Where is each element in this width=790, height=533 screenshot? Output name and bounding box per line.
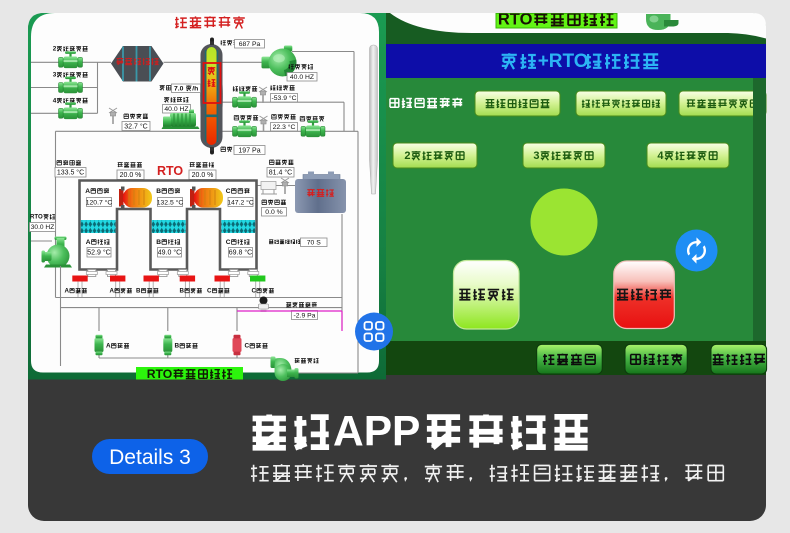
svg-text:197 Pa: 197 Pa (238, 147, 260, 154)
svg-text:APP: APP (333, 408, 420, 455)
svg-text:120.7 °C: 120.7 °C (86, 198, 113, 206)
svg-text:RTO: RTO (30, 214, 43, 221)
svg-text:81.4 °C: 81.4 °C (269, 169, 292, 177)
svg-text:49.0 °C: 49.0 °C (158, 249, 181, 257)
svg-text:+RTO: +RTO (538, 51, 589, 72)
svg-text:A: A (65, 288, 70, 295)
svg-text:A: A (106, 343, 111, 350)
svg-text:4: 4 (53, 98, 57, 105)
svg-text:133.5 °C: 133.5 °C (57, 169, 84, 177)
svg-text:C: C (207, 288, 212, 295)
svg-text:22.3 °C: 22.3 °C (273, 123, 296, 131)
svg-text:30.0 HZ: 30.0 HZ (31, 224, 54, 231)
svg-text:C: C (226, 239, 231, 246)
svg-text:2: 2 (404, 150, 410, 162)
svg-text:69.8 °C: 69.8 °C (229, 249, 252, 257)
svg-text:B: B (156, 239, 161, 246)
svg-text:-53.9 °C: -53.9 °C (271, 94, 296, 102)
svg-text:20.0 %: 20.0 % (120, 172, 142, 179)
svg-text:4: 4 (657, 150, 664, 162)
svg-text:32.7 °C: 32.7 °C (124, 122, 147, 130)
svg-text:3: 3 (53, 72, 57, 79)
svg-text:Details 3: Details 3 (109, 446, 191, 469)
svg-text:B: B (175, 343, 180, 350)
svg-text:3: 3 (533, 150, 539, 162)
svg-text:B: B (180, 288, 185, 295)
svg-text:20.0 %: 20.0 % (192, 172, 214, 179)
svg-text:RTO: RTO (157, 164, 183, 178)
svg-text:-2.9 Pa: -2.9 Pa (294, 312, 316, 319)
svg-text:C: C (226, 188, 231, 195)
svg-text:40.0 HZ: 40.0 HZ (164, 106, 188, 113)
svg-text:B: B (156, 188, 161, 195)
svg-text:40.0 HZ: 40.0 HZ (290, 74, 314, 81)
svg-text:0.0 %: 0.0 % (265, 209, 282, 216)
svg-text:RTO: RTO (147, 367, 173, 381)
svg-text:7.0: 7.0 (174, 85, 184, 92)
svg-text:70 S: 70 S (307, 240, 321, 247)
svg-text:132.5 °C: 132.5 °C (157, 198, 184, 206)
svg-text:B: B (136, 288, 141, 295)
svg-text:C: C (252, 288, 257, 295)
svg-text:52.9 °C: 52.9 °C (87, 249, 110, 257)
svg-text:2: 2 (53, 46, 57, 53)
svg-text:147.2 °C: 147.2 °C (227, 198, 254, 206)
svg-text:C: C (245, 343, 250, 350)
svg-text:A: A (85, 188, 90, 195)
svg-text:A: A (86, 239, 91, 246)
svg-text:A: A (110, 288, 115, 295)
svg-text:/h: /h (192, 85, 198, 92)
svg-text:687 Pa: 687 Pa (239, 41, 261, 48)
